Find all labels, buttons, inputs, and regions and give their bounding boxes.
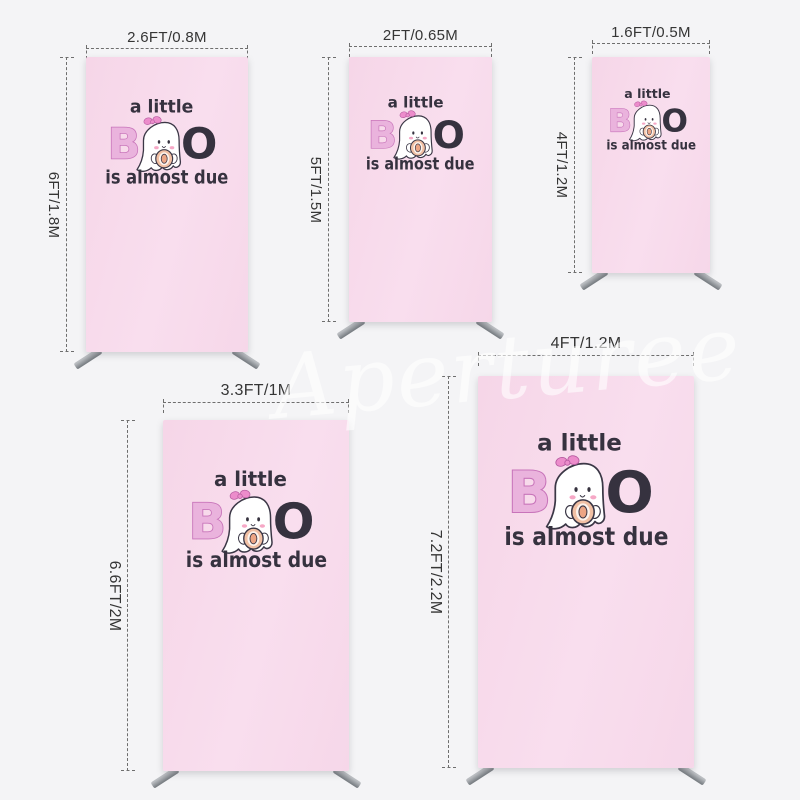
- product-size-chart: 2.6FT/0.8M 6FT/1.8M a little B O: [0, 0, 800, 800]
- dimension-tick: [322, 57, 336, 58]
- design-letter-o: O: [272, 493, 314, 551]
- design-letter-b: B: [608, 104, 632, 140]
- dimension-tick: [709, 40, 710, 54]
- backdrop-fabric: a little B O: [592, 57, 710, 273]
- dimension-tick: [60, 351, 74, 352]
- design-text-is-almost-due: is almost due: [185, 548, 326, 572]
- design-letter-o: O: [181, 120, 217, 170]
- ghost-illustration: [222, 489, 272, 553]
- height-dimension-label: 6FT/1.8M: [45, 171, 62, 238]
- height-dimension-line: 4FT/1.2M: [574, 57, 575, 273]
- backdrop-stand-4: 3.3FT/1M 6.6FT/2M a little B O: [163, 420, 349, 771]
- boo-design-graphic: a little B O: [500, 423, 673, 551]
- height-dimension-line: 6.6FT/2M: [127, 420, 128, 771]
- design-letter-b: B: [368, 113, 397, 157]
- backdrop-fabric: a little B O: [349, 57, 492, 322]
- height-dimension-line: 5FT/1.5M: [328, 57, 329, 322]
- dimension-tick: [121, 420, 135, 421]
- backdrop-stand-1: 2.6FT/0.8M 6FT/1.8M a little B O: [86, 57, 248, 352]
- backdrop-fabric: a little B O: [86, 57, 248, 352]
- width-dimension-label: 4FT/1.2M: [551, 335, 622, 353]
- dimension-tick: [163, 399, 164, 413]
- height-dimension-label: 7.2FT/2.2M: [426, 530, 444, 615]
- design-letter-b: B: [188, 493, 225, 551]
- design-letter-b: B: [507, 460, 550, 526]
- design-letter-o: O: [661, 104, 687, 140]
- dimension-tick: [121, 770, 135, 771]
- design-text-is-almost-due: is almost due: [606, 137, 696, 152]
- design-text-a-little: a little: [624, 87, 671, 102]
- ghost-illustration: [394, 110, 432, 159]
- dimension-tick: [491, 43, 492, 57]
- width-dimension-label: 2.6FT/0.8M: [127, 29, 207, 46]
- design-text-a-little: a little: [537, 430, 622, 457]
- backdrop-stand-2: 2FT/0.65M 5FT/1.5M a little B O: [349, 57, 492, 322]
- backdrop-stand-3: 1.6FT/0.5M 4FT/1.2M a little B O: [592, 57, 710, 273]
- dimension-tick: [348, 399, 349, 413]
- width-dimension-line: 1.6FT/0.5M: [592, 43, 710, 44]
- height-dimension-label: 6.6FT/2M: [105, 560, 123, 631]
- design-text-a-little: a little: [130, 98, 194, 118]
- height-dimension-label: 5FT/1.5M: [307, 156, 324, 223]
- backdrop-fabric: a little B O: [478, 376, 694, 768]
- height-dimension-label: 4FT/1.2M: [553, 132, 570, 199]
- width-dimension-label: 3.3FT/1M: [221, 382, 292, 400]
- ghost-illustration: [546, 455, 604, 529]
- ghost-illustration: [137, 116, 180, 172]
- design-letter-o: O: [605, 460, 653, 526]
- boo-design-graphic: a little B O: [102, 92, 232, 188]
- design-letter-o: O: [433, 113, 465, 157]
- design-text-a-little: a little: [388, 93, 444, 111]
- dimension-tick: [442, 376, 456, 377]
- design-letter-b: B: [108, 120, 141, 170]
- dimension-tick: [349, 43, 350, 57]
- width-dimension-line: 2.6FT/0.8M: [86, 48, 248, 49]
- boo-design-graphic: a little B O: [182, 462, 331, 572]
- width-dimension-line: 3.3FT/1M: [163, 402, 349, 403]
- dimension-tick: [60, 57, 74, 58]
- design-text-is-almost-due: is almost due: [366, 154, 475, 173]
- boo-design-graphic: a little B O: [363, 89, 477, 174]
- ghost-illustration: [629, 100, 661, 141]
- dimension-tick: [478, 352, 479, 366]
- backdrop-stand-5: 4FT/1.2M 7.2FT/2.2M a little B O: [478, 376, 694, 768]
- dimension-tick: [568, 272, 582, 273]
- width-dimension-line: 2FT/0.65M: [349, 46, 492, 47]
- height-dimension-line: 7.2FT/2.2M: [448, 376, 449, 768]
- design-text-is-almost-due: is almost due: [105, 168, 228, 189]
- dimension-tick: [693, 352, 694, 366]
- width-dimension-line: 4FT/1.2M: [478, 355, 694, 356]
- dimension-tick: [442, 767, 456, 768]
- backdrop-fabric: a little B O: [163, 420, 349, 771]
- height-dimension-line: 6FT/1.8M: [66, 57, 67, 352]
- width-dimension-label: 2FT/0.65M: [383, 27, 458, 44]
- dimension-tick: [592, 40, 593, 54]
- dimension-tick: [322, 321, 336, 322]
- design-text-is-almost-due: is almost due: [504, 522, 668, 551]
- dimension-tick: [568, 57, 582, 58]
- boo-design-graphic: a little B O: [604, 83, 698, 153]
- design-text-a-little: a little: [214, 467, 287, 491]
- width-dimension-label: 1.6FT/0.5M: [611, 24, 691, 41]
